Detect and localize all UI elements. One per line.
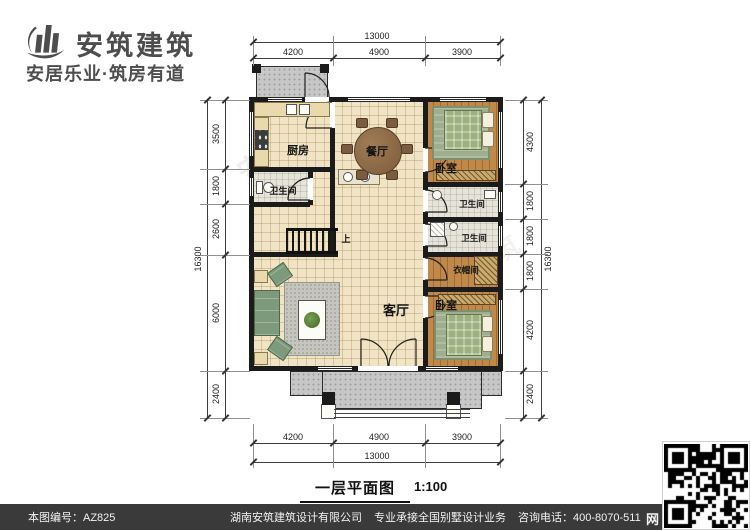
dim-bottom-seg: 4900 bbox=[358, 432, 400, 442]
kitchen-sink bbox=[286, 104, 297, 115]
bedroom-bottom-bed bbox=[446, 314, 482, 356]
room-label-bedroom-bottom: 卧室 bbox=[428, 297, 464, 313]
basin-bath1 bbox=[432, 190, 442, 200]
stairs bbox=[286, 228, 338, 254]
dining-chair bbox=[341, 144, 353, 154]
dim-left-seg: 1800 bbox=[211, 166, 221, 206]
pillow bbox=[482, 336, 493, 352]
extension-line bbox=[505, 184, 548, 185]
footer-phone: 咨询电话：400-8070-511 bbox=[518, 509, 641, 525]
pillow bbox=[482, 112, 494, 128]
wash-basin bbox=[343, 172, 353, 182]
pillow bbox=[482, 316, 493, 332]
dim-right-seg: 4300 bbox=[525, 122, 535, 162]
stairs-up-label: 上 bbox=[340, 232, 352, 245]
extension-line bbox=[505, 289, 548, 290]
dim-top-seg: 4900 bbox=[358, 47, 400, 57]
room-label-bedroom-top: 卧室 bbox=[428, 160, 464, 176]
room-label-dining: 餐厅 bbox=[357, 143, 397, 159]
extension-line bbox=[505, 254, 548, 255]
dim-bottom-total: 13000 bbox=[352, 451, 402, 461]
dimension-line bbox=[253, 443, 500, 444]
room-label-kitchen: 厨房 bbox=[272, 142, 324, 158]
qr-code-canvas bbox=[664, 444, 748, 528]
dim-bottom-seg: 3900 bbox=[441, 432, 483, 442]
floor-plan-page: 安筑建筑 安居乐业·筑房有道 安筑建筑 anaz.jz.com 安筑建筑 bbox=[0, 0, 750, 530]
dimension-line bbox=[253, 58, 500, 59]
qr-code bbox=[662, 441, 750, 530]
end-table bbox=[254, 352, 268, 365]
dim-top-total: 13000 bbox=[352, 31, 402, 41]
room-label-bath-left: 卫生间 bbox=[260, 184, 306, 197]
dim-left-seg: 3500 bbox=[211, 114, 221, 154]
footer-business: 专业承接全国别墅设计业务 bbox=[374, 509, 506, 525]
dim-right-total: 16300 bbox=[543, 239, 553, 279]
dimension-line bbox=[253, 42, 500, 43]
extension-line bbox=[333, 36, 334, 66]
end-table bbox=[254, 270, 268, 283]
pillow bbox=[482, 131, 494, 147]
shower-bath2 bbox=[430, 222, 445, 237]
dining-chair bbox=[356, 118, 368, 128]
extension-line bbox=[425, 424, 426, 468]
kitchen-sink bbox=[299, 104, 310, 115]
extension-line bbox=[425, 36, 426, 66]
drawing-number: 本图编号：AZ825 bbox=[28, 509, 115, 525]
room-label-living: 客厅 bbox=[372, 300, 420, 319]
extension-line bbox=[505, 371, 548, 372]
drawing-scale: 1:100 bbox=[414, 479, 447, 494]
basin-bath2 bbox=[449, 222, 458, 231]
dining-chair bbox=[401, 144, 413, 154]
dim-right-seg: 2400 bbox=[525, 374, 535, 414]
drawing-title: 一层平面图 bbox=[300, 477, 410, 503]
extension-line bbox=[505, 219, 548, 220]
dim-left-total: 16300 bbox=[193, 239, 203, 279]
dining-chair bbox=[386, 118, 398, 128]
kitchen-stove bbox=[255, 130, 268, 150]
extension-line bbox=[333, 424, 334, 468]
room-label-cloakroom: 衣帽间 bbox=[444, 264, 488, 276]
room-label-bath2: 卫生间 bbox=[452, 232, 496, 244]
dim-right-seg: 4200 bbox=[525, 310, 535, 350]
footer-company: 湖南安筑建筑设计有限公司 bbox=[230, 509, 362, 525]
dimension-line bbox=[253, 462, 500, 463]
dim-bottom-seg: 4200 bbox=[272, 432, 314, 442]
bedroom-top-bed bbox=[444, 110, 482, 150]
dim-left-seg: 6000 bbox=[211, 293, 221, 333]
dim-top-seg: 3900 bbox=[441, 47, 483, 57]
dim-top-seg: 4200 bbox=[272, 47, 314, 57]
dim-left-seg: 2600 bbox=[211, 209, 221, 249]
room-label-bath1: 卫生间 bbox=[450, 198, 494, 210]
footer-web-label: 网 bbox=[646, 509, 659, 528]
sofa bbox=[254, 290, 280, 336]
plant bbox=[304, 312, 320, 328]
dim-left-seg: 2400 bbox=[211, 374, 221, 414]
